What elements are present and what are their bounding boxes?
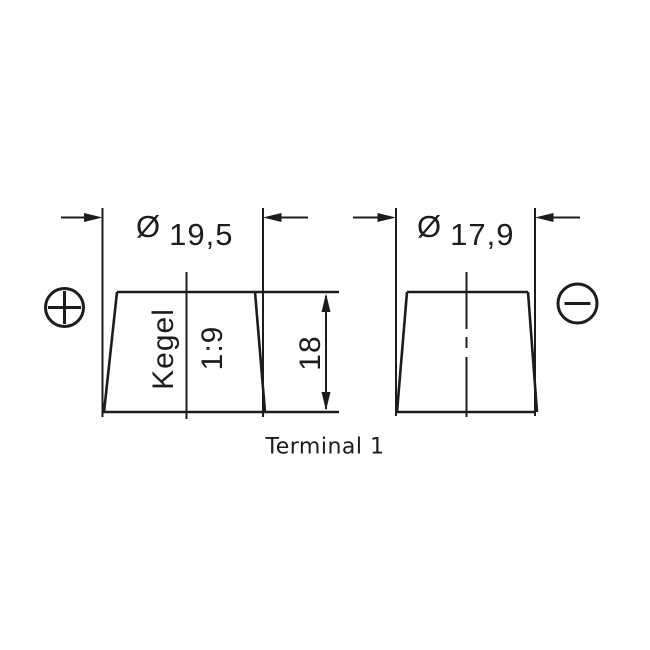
cone-left-edge [104, 292, 117, 412]
diameter-value: 19,5 [169, 219, 233, 250]
positive-diameter-label: Ø 19,5 [136, 211, 233, 242]
arrowhead-left-icon [263, 213, 282, 222]
drawing-caption: Terminal 1 [266, 435, 385, 460]
arrowhead-right-icon [84, 213, 103, 222]
diameter-symbol: Ø [136, 211, 160, 242]
arrowhead-down-icon [322, 392, 331, 411]
drawing-canvas [0, 0, 650, 650]
diameter-symbol: Ø [417, 211, 441, 242]
diameter-value: 17,9 [450, 219, 514, 250]
plus-circle-icon [46, 289, 84, 327]
arrowhead-left-icon [535, 213, 554, 222]
minus-circle-icon [558, 284, 597, 323]
technical-drawing: Ø 19,5 Ø 17,9 Kegel 1:9 18 Terminal 1 [0, 0, 650, 650]
cone-left-edge [397, 292, 407, 412]
negative-diameter-label: Ø 17,9 [417, 211, 514, 242]
taper-ratio-label: 1:9 [198, 326, 228, 371]
taper-label: Kegel [149, 308, 179, 390]
arrowhead-up-icon [322, 294, 331, 313]
arrowhead-right-icon [378, 213, 397, 222]
height-dimension-label: 18 [296, 335, 326, 370]
